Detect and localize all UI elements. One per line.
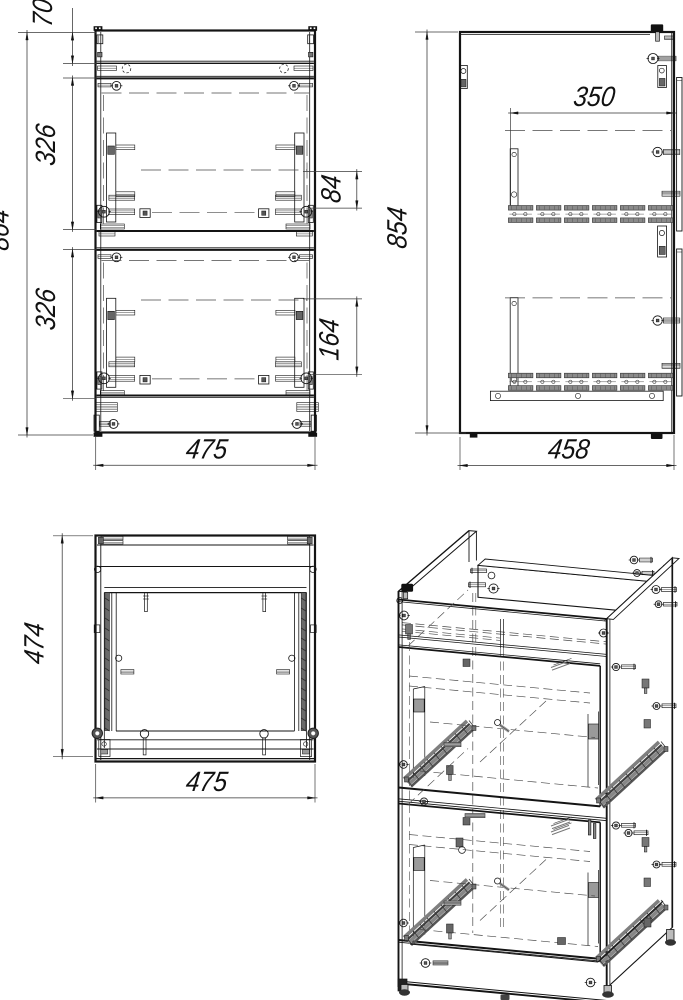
- svg-text:350: 350: [572, 81, 618, 113]
- svg-text:70: 70: [27, 0, 59, 29]
- svg-text:475: 475: [184, 766, 230, 798]
- svg-text:326: 326: [30, 122, 62, 168]
- svg-text:475: 475: [184, 433, 230, 465]
- svg-text:864: 864: [0, 207, 15, 253]
- svg-text:458: 458: [546, 433, 592, 465]
- svg-text:326: 326: [30, 286, 62, 332]
- svg-text:84: 84: [315, 173, 347, 205]
- svg-text:474: 474: [18, 620, 50, 666]
- svg-text:854: 854: [381, 205, 413, 251]
- svg-text:164: 164: [313, 316, 345, 362]
